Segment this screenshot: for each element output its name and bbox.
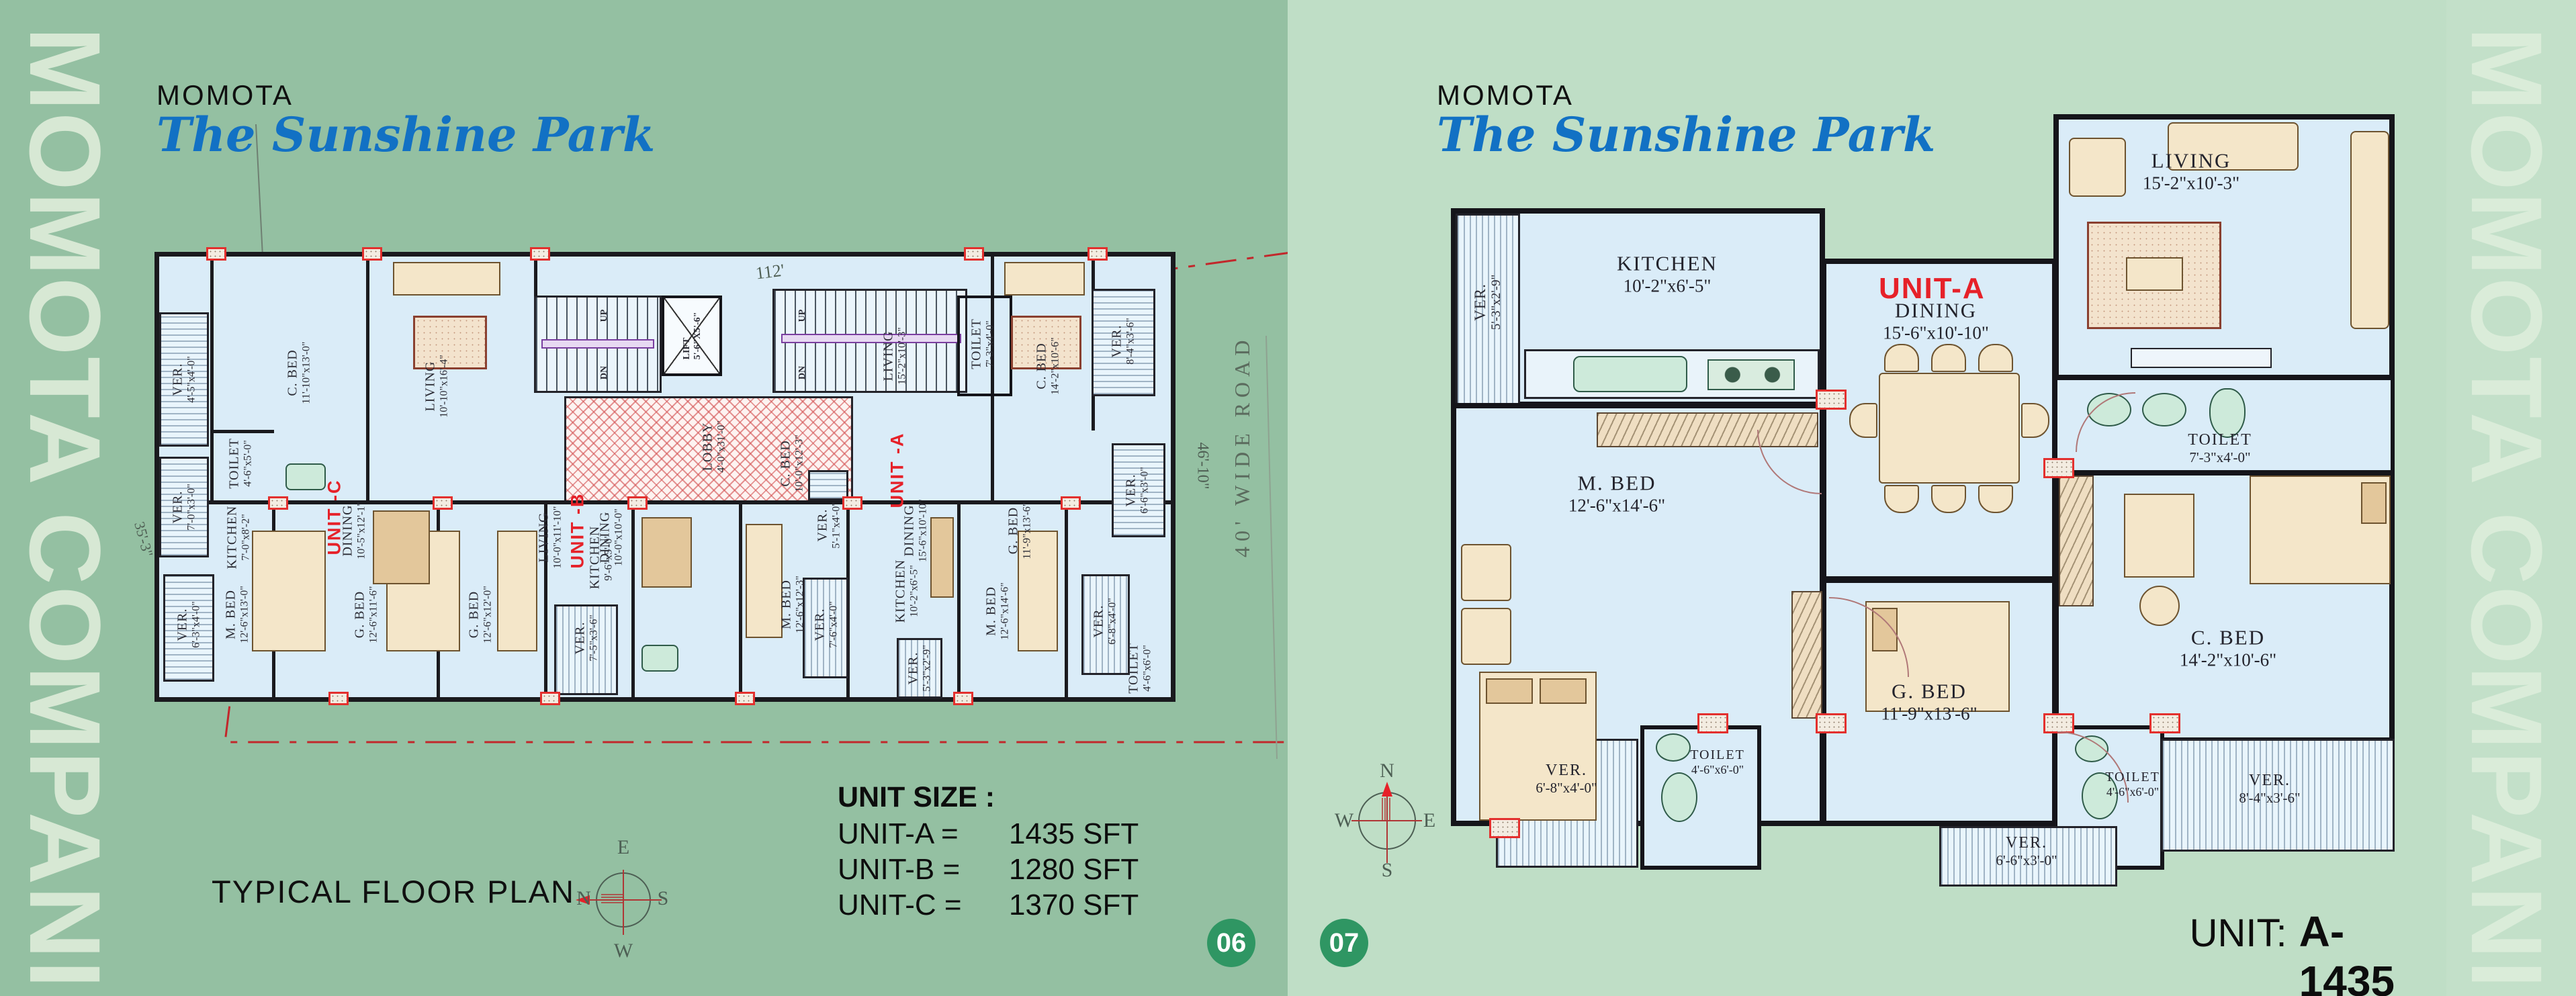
rug	[2087, 222, 2221, 329]
room-label: TOILET4'-6"x6'-0"	[1126, 643, 1154, 694]
sofa	[393, 262, 500, 296]
compass-left: W	[1335, 809, 1353, 832]
tv-console	[2131, 348, 2272, 368]
room-label: LIVING15'-2"x10'-3"	[2143, 149, 2239, 194]
room-label: TOILET7'-3"x4'-0"	[2188, 431, 2252, 466]
wall	[631, 504, 635, 698]
unit-size-row: UNIT-A = 1435 SFT	[838, 816, 1139, 852]
wall	[739, 504, 742, 698]
road-label: 40' WIDE ROAD	[1230, 335, 1255, 557]
room-label: TOILET4'-6"x5'-0"	[227, 438, 255, 489]
room-label: TOILET4'-6"x6'-0"	[1690, 748, 1745, 777]
column-marker	[540, 692, 560, 705]
road-edge-line	[1266, 336, 1277, 759]
column-marker	[433, 496, 453, 510]
dim-right: 46'-10"	[1194, 442, 1212, 489]
dining-chair	[1931, 485, 1966, 513]
room-label: G. BED11'-9"x13'-6"	[1006, 502, 1034, 559]
bed	[497, 531, 537, 651]
room-label: KITCHEN9'-6"x5'-0"	[588, 526, 615, 590]
dining-chair	[1978, 344, 2013, 372]
sofa	[2350, 131, 2389, 329]
dining-chair	[1849, 403, 1877, 438]
pillow	[2361, 482, 2387, 524]
room-label: VER.6'-8"x4'-0"	[1536, 762, 1597, 797]
stairs-dn-label: DN	[599, 366, 610, 379]
column-marker	[1489, 818, 1520, 838]
room-label: C. BED11'-10"x13'-0"	[285, 342, 313, 404]
compass-right: S	[658, 887, 669, 910]
sofa	[1004, 262, 1085, 296]
brand-project: The Sunshine Park	[1437, 111, 1935, 159]
stair-rail	[781, 334, 961, 343]
room-label: VER.8'-4"x3'-6"	[2239, 772, 2300, 807]
room-label: M. BED12'-6"x14'-6"	[984, 582, 1012, 639]
sink-icon	[2075, 735, 2108, 762]
room-label: DINING10'-5"x12'-1"	[341, 502, 368, 559]
desk	[2124, 494, 2194, 578]
dining-chair	[1884, 344, 1919, 372]
column-marker	[268, 496, 288, 510]
dining-chair	[1884, 485, 1919, 513]
room-label: C. BED14'-2"x10'-6"	[2180, 626, 2276, 671]
column-marker	[2149, 713, 2180, 733]
room-label: VER.6'-6"x3'-0"	[1996, 834, 2057, 869]
column-marker	[206, 247, 226, 261]
unit-size-row: UNIT-B = 1280 SFT	[838, 852, 1139, 887]
wardrobe	[1791, 591, 1822, 719]
plan-title: TYPICAL FLOOR PLAN	[212, 873, 575, 910]
column-marker	[2043, 713, 2074, 733]
stairs-up-label: UP	[797, 310, 808, 322]
dining-chair	[1978, 485, 2013, 513]
column-marker	[842, 496, 862, 510]
column-marker	[362, 247, 382, 261]
room-label: M. BED12'-6"x14'-6"	[1568, 471, 1665, 516]
dining-table	[373, 510, 430, 584]
room-label: VER.7'-6"x4'-0"	[813, 601, 840, 647]
armchair	[1461, 544, 1511, 601]
room-label: VER.5'-3"x2'-9"	[1472, 275, 1504, 330]
bed	[2250, 476, 2391, 584]
compass-top: N	[1380, 760, 1394, 782]
room-label: VER.8'-4"x3'-6"	[1110, 318, 1137, 364]
wall	[1065, 504, 1068, 698]
wall	[210, 256, 214, 500]
wall	[210, 430, 274, 433]
company-watermark: MOMOTA COMPANIES LTD.	[15, 27, 123, 967]
dining-chair	[1931, 344, 1966, 372]
room-label: VER.7'-5"x3'-6"	[573, 615, 601, 661]
dim-left: 35'-3"	[130, 520, 157, 559]
column-marker	[964, 247, 984, 261]
sink-icon	[1656, 733, 1691, 762]
compass-right: E	[1423, 809, 1435, 832]
armchair	[2069, 138, 2126, 197]
column-marker	[328, 692, 349, 705]
bed	[252, 531, 326, 651]
compass-left: N	[576, 887, 591, 910]
brand-project: The Sunshine Park	[157, 111, 655, 159]
room-label: G. BED12'-6"x12'-0"	[467, 586, 494, 643]
column-marker	[953, 692, 973, 705]
room-label: VER.6'-3"x4'-0"	[175, 601, 203, 647]
left-banner: MOMOTA COMPANIES LTD.	[0, 0, 131, 996]
room-label: KITCHEN10'-2"x6'-5"	[1617, 252, 1718, 297]
stairs-left	[534, 296, 662, 393]
column-marker	[1061, 496, 1081, 510]
toilet-icon	[2209, 388, 2246, 438]
unit-footer-prefix: UNIT:	[2190, 911, 2287, 956]
compass-bottom: W	[614, 940, 633, 962]
right-banner: MOMOTA COMPANIES LTD.	[2446, 0, 2576, 996]
right-page: MOMOTA The Sunshine Park	[1288, 0, 2446, 996]
room-label: C. BED14'-2"x10'-6"	[1034, 337, 1062, 394]
lift-label: LIFT 5'-6"X5'-6"	[682, 312, 703, 360]
unit-size-block: UNIT SIZE : UNIT-A = 1435 SFT UNIT-B = 1…	[838, 779, 1139, 923]
kitchen-sink-icon	[641, 645, 678, 672]
dim-top: 112'	[754, 261, 785, 284]
room-label: G. BED11'-9"x13'-6"	[1881, 680, 1977, 725]
dining-chair	[2021, 403, 2049, 438]
brochure-spread: MOMOTA COMPANIES LTD. MOMOTA The Sunshin…	[0, 0, 2576, 996]
column-marker	[1697, 713, 1728, 733]
compass-needle-icon	[1382, 782, 1392, 797]
pillow	[1872, 608, 1898, 651]
compass-top: E	[617, 836, 629, 859]
room-label: KITCHEN7'-0"x8'-2"	[225, 506, 253, 570]
room-label: M. BED12'-6"x12'-3"	[779, 576, 807, 633]
room-label: TOILET4'-6"x6'-0"	[2105, 770, 2160, 799]
toilet-icon	[1661, 772, 1697, 822]
unit-size-heading: UNIT SIZE :	[838, 779, 1139, 816]
sink-icon	[2142, 393, 2186, 426]
pillow	[1486, 678, 1533, 704]
room-label: LIVING15'-2"x10'-3"	[881, 327, 909, 384]
room-label: M. BED12'-6"x13'-0"	[224, 586, 251, 643]
unit-size-row: UNIT-C = 1370 SFT	[838, 887, 1139, 923]
brand-block: MOMOTA The Sunshine Park	[1437, 79, 1935, 159]
unit-a-label: UNIT -A	[887, 433, 908, 508]
dining-table	[1879, 373, 2020, 484]
column-marker	[530, 247, 550, 261]
wardrobe	[2059, 476, 2094, 606]
lobby-label: LOBBY 4'-0"x31'-0"	[701, 420, 728, 472]
stove-icon	[1707, 359, 1795, 390]
room-label: VER.4'-5"x4'-0"	[171, 356, 198, 402]
compass-bottom: S	[1382, 859, 1393, 882]
column-marker	[1816, 713, 1847, 733]
unit-footer-value: A-1435 SFT	[2299, 907, 2395, 996]
pillow	[1540, 678, 1587, 704]
column-marker	[2043, 458, 2074, 478]
page-number-badge: 07	[1320, 919, 1368, 967]
bed	[1479, 672, 1597, 821]
stairs-dn-label: DN	[797, 366, 808, 379]
desk-chair	[2139, 586, 2180, 626]
stair-rail	[541, 339, 654, 349]
wall	[366, 256, 369, 500]
dining-table	[930, 517, 954, 598]
column-marker	[735, 692, 755, 705]
kitchen-sink-icon	[285, 463, 326, 490]
room-label: VER.6'-6"x3'-0"	[1124, 467, 1151, 513]
page-number-badge: 06	[1207, 919, 1255, 967]
wardrobe	[1597, 412, 1818, 447]
kitchen-sink-icon	[1573, 356, 1687, 392]
room-label: TOILET7'-3"x4'-0"	[969, 318, 997, 369]
company-watermark: MOMOTA COMPANIES LTD.	[2457, 27, 2565, 967]
room-label: LIVING10'-10"x16'-4"	[423, 355, 451, 417]
wall	[534, 256, 537, 296]
wall	[957, 504, 961, 698]
room-label: C. BED10'-0"x12'-3"	[779, 435, 806, 492]
sink-icon	[2087, 393, 2131, 426]
column-marker	[1816, 390, 1847, 410]
left-page: MOMOTA The Sunshine Park LIFT 5'-6"X5'-6…	[131, 0, 1288, 996]
column-marker	[627, 496, 648, 510]
room-label: VER.5'-3"x2'-9"	[906, 645, 934, 691]
room-label: VER.7'-0"x3'-0"	[171, 484, 198, 530]
room-label: DINING15'-6"x10'-10"	[902, 499, 930, 561]
dining-table	[641, 517, 692, 588]
column-marker	[1087, 247, 1108, 261]
bed	[746, 524, 783, 638]
unit-b-label: UNIT -B	[568, 493, 588, 569]
room-label: LIVING10'-0"x11'-10"	[537, 506, 564, 569]
room-label: DINING15'-6"x10'-10"	[1883, 299, 1989, 344]
room-label: VER.6'-8"x4'-0"	[1092, 598, 1119, 644]
brand-block: MOMOTA The Sunshine Park	[157, 79, 655, 159]
room-label: G. BED12'-6"x11'-6"	[353, 586, 380, 643]
unit-footer: UNIT: A-1435 SFT	[2190, 907, 2395, 996]
stairs-up-label: UP	[599, 310, 610, 322]
coffee-table	[2126, 257, 2183, 291]
room-label: KITCHEN10'-2"x6'-5"	[893, 559, 921, 623]
room-label: VER.5'-1"x4'-0"	[815, 502, 843, 548]
armchair	[1461, 608, 1511, 665]
